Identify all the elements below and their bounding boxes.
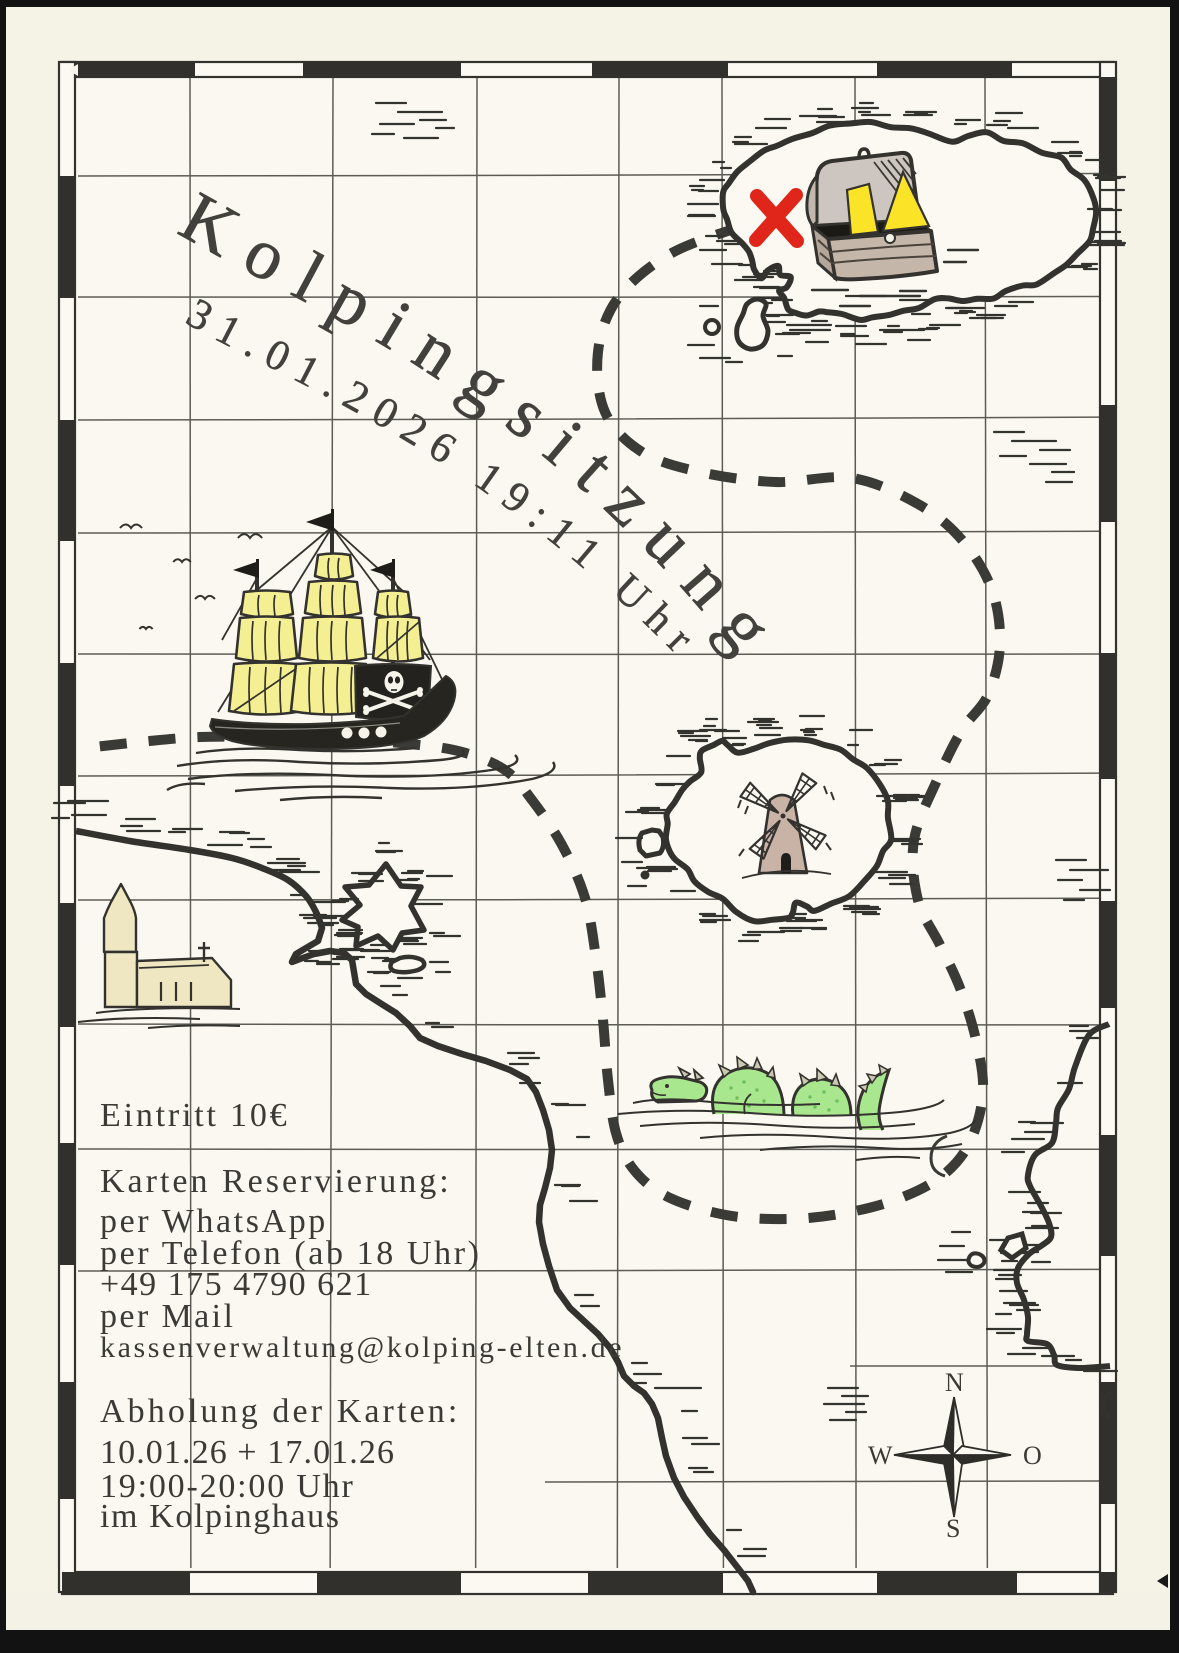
svg-text:Karten Reservierung:: Karten Reservierung: (100, 1163, 452, 1200)
svg-text:Abholung der Karten:: Abholung der Karten: (100, 1393, 460, 1430)
svg-text:im Kolpinghaus: im Kolpinghaus (100, 1498, 341, 1535)
svg-text:10.01.26 + 17.01.26: 10.01.26 + 17.01.26 (100, 1434, 395, 1471)
svg-text:O: O (1023, 1441, 1042, 1470)
svg-text:N: N (945, 1368, 964, 1397)
svg-text:Eintritt 10€: Eintritt 10€ (100, 1097, 289, 1134)
svg-text:W: W (868, 1441, 893, 1470)
svg-text:S: S (946, 1514, 960, 1543)
svg-text:kassenverwaltung@kolping-elten: kassenverwaltung@kolping-elten.de (100, 1331, 624, 1364)
svg-text:per Mail: per Mail (100, 1298, 235, 1335)
